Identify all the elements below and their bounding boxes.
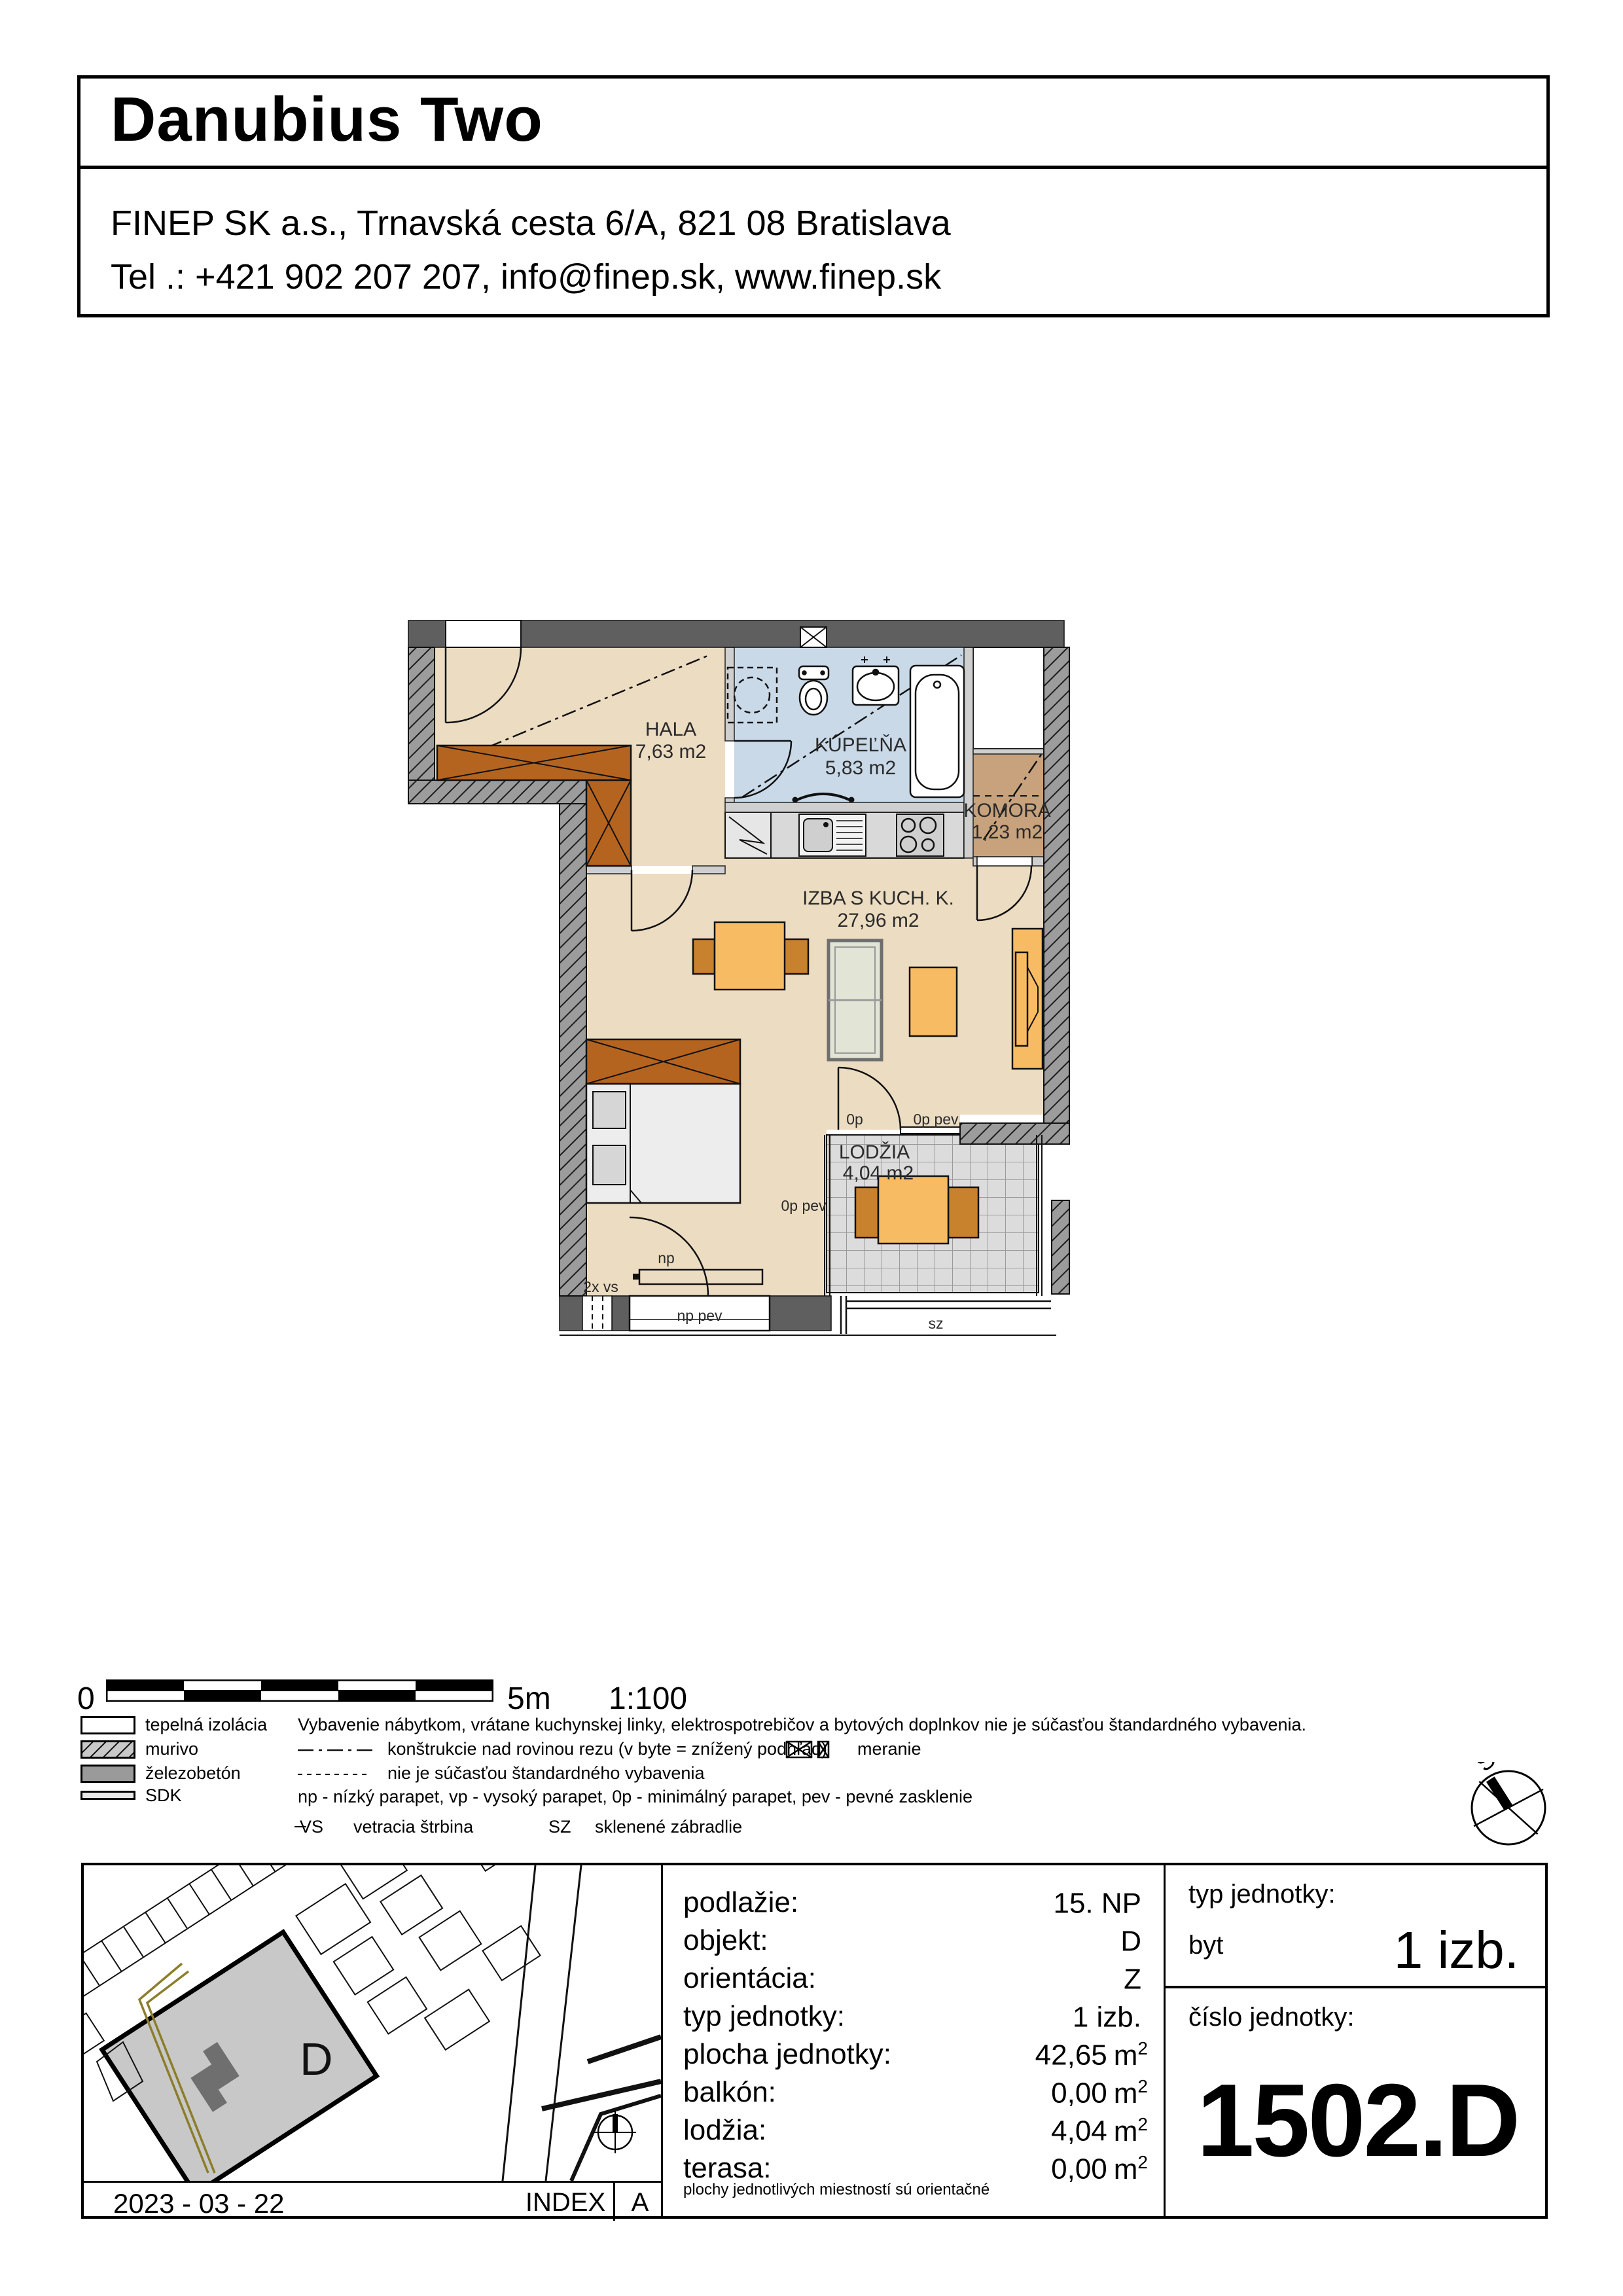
room-area-kupelna: 5,83 m2 xyxy=(825,757,896,779)
row-value: 0,00m2 xyxy=(1051,2152,1148,2186)
legend-item-label: železobetón xyxy=(145,1763,241,1784)
glass-railing xyxy=(841,1296,1051,1334)
table-row: balkón: 0,00m2 xyxy=(683,2076,1148,2109)
unit-type-value: 1 izb. xyxy=(1394,1920,1519,1981)
row-label: orientácia: xyxy=(683,1962,816,1995)
loggia-chair xyxy=(948,1187,978,1238)
floor-plan: HALA 7,63 m2 KÚPEĽŇA 5,83 m2 KOMORA 1,23… xyxy=(404,614,1079,1344)
company-address: FINEP SK a.s., Trnavská cesta 6/A, 821 0… xyxy=(111,203,951,243)
swatch-murivo xyxy=(80,1740,135,1759)
note-equipment: Vybavenie nábytkom, vrátane kuchynskej l… xyxy=(298,1715,1306,1735)
row-value: 1 izb. xyxy=(1073,2000,1148,2034)
pillow xyxy=(593,1092,626,1128)
table-row: typ jednotky: 1 izb. xyxy=(683,2000,1148,2033)
vent-gap xyxy=(582,1296,612,1331)
swatch-sdk xyxy=(80,1791,135,1800)
divider xyxy=(1166,1986,1545,1988)
chair xyxy=(693,939,715,974)
loggia-glazing xyxy=(901,1127,960,1134)
row-value: 4,04m2 xyxy=(1051,2114,1148,2148)
row-label: plocha jednotky: xyxy=(683,2038,891,2071)
dining-table xyxy=(715,922,785,990)
mark-np: np xyxy=(658,1249,675,1266)
dashdot-sample xyxy=(298,1746,376,1754)
coffee-table xyxy=(910,967,957,1036)
table-row: objekt: D xyxy=(683,1924,1148,1957)
index-label: INDEX xyxy=(520,2188,611,2217)
loggia-chair xyxy=(855,1187,878,1238)
site-map: D xyxy=(84,1865,661,2181)
vs-tick xyxy=(294,1826,306,1827)
row-value: Z xyxy=(1124,1962,1148,1996)
room-label-lodzia: LODŽIA xyxy=(839,1141,910,1163)
row-value: 15. NP xyxy=(1053,1886,1148,1920)
row-label: podlažie: xyxy=(683,1886,798,1919)
row-label: balkón: xyxy=(683,2076,776,2109)
scalebar xyxy=(106,1679,493,1702)
title-block: D 2023 - 03 - 22 INDEX A podlažie: 15. N… xyxy=(81,1863,1548,2219)
row-label: terasa: xyxy=(683,2152,772,2185)
room-label-hala: HALA xyxy=(645,719,696,740)
legend-vs-text: vetracia štrbina xyxy=(353,1817,473,1837)
floorplan-sheet: Danubius Two FINEP SK a.s., Trnavská ces… xyxy=(0,0,1623,2296)
note-section: konštrukcie nad rovinou rezu (v byte = z… xyxy=(387,1739,827,1759)
mark-vs: 2x vs xyxy=(583,1278,618,1295)
scalebar-zero: 0 xyxy=(77,1681,95,1717)
revision: A xyxy=(615,2188,665,2217)
meranie-icon xyxy=(785,1740,831,1759)
room-label-kupelna: KÚPEĽŇA xyxy=(815,734,906,756)
compass-north-pointer xyxy=(1483,1779,1516,1808)
row-label: objekt: xyxy=(683,1924,768,1957)
unit-number: 1502.D xyxy=(1170,2062,1545,2180)
row-value: 42,65m2 xyxy=(1035,2038,1148,2072)
table-row: podlažie: 15. NP xyxy=(683,1886,1148,1919)
table-row: orientácia: Z xyxy=(683,1962,1148,1995)
map-building-label: D xyxy=(300,2034,333,2085)
note-meranie: meranie xyxy=(857,1739,921,1759)
scalebar-ratio: 1:100 xyxy=(609,1681,687,1717)
page-title: Danubius Two xyxy=(111,84,543,156)
hala-wardrobe xyxy=(437,745,631,866)
mark-sz: sz xyxy=(929,1315,944,1332)
entry-door-opening xyxy=(446,620,521,647)
room-area-komora: 1,23 m2 xyxy=(972,821,1043,843)
kitchen-faucet xyxy=(823,822,829,827)
unit-type-label: typ jednotky: xyxy=(1188,1880,1336,1909)
divider xyxy=(661,1865,663,2216)
swatch-zelezobeton xyxy=(80,1765,135,1783)
row-value: 0,00m2 xyxy=(1051,2076,1148,2110)
scalebar-cells xyxy=(107,1680,493,1701)
mark-op-pev-top: 0p pev xyxy=(913,1111,959,1128)
pillow xyxy=(593,1145,626,1185)
loggia-table xyxy=(878,1176,948,1244)
legend-item-label: murivo xyxy=(145,1739,198,1759)
note-parapet: np - nízký parapet, vp - vysoký parapet,… xyxy=(298,1787,972,1807)
company-contact: Tel .: +421 902 207 207, info@finep.sk, … xyxy=(111,257,941,297)
bathtub xyxy=(910,666,964,797)
row-label: typ jednotky: xyxy=(683,2000,845,2033)
note-dashed: nie je súčasťou štandardného vybavenia xyxy=(387,1763,704,1784)
komora-threshold xyxy=(977,857,1032,866)
room-label-komora: KOMORA xyxy=(963,800,1050,821)
radiator xyxy=(639,1270,762,1284)
room-area-hala: 7,63 m2 xyxy=(635,741,706,762)
legend-sz-text: sklenené zábradlie xyxy=(595,1817,742,1837)
toilet xyxy=(799,666,829,715)
legend-sz-abbr: SZ xyxy=(548,1817,571,1837)
room-area-izba: 27,96 m2 xyxy=(837,910,919,931)
compass: S xyxy=(1463,1762,1554,1854)
title-section: Danubius Two xyxy=(80,79,1546,169)
mark-op: 0p xyxy=(846,1111,863,1128)
mark-op-pev-bottom: 0p pev xyxy=(781,1197,827,1214)
date: 2023 - 03 - 22 xyxy=(113,2188,285,2219)
swatch-tepelna-izolacia xyxy=(80,1716,135,1734)
table-row: lodžia: 4,04m2 xyxy=(683,2114,1148,2147)
unit-type-kind: byt xyxy=(1188,1931,1223,1960)
table-footnote: plochy jednotlivých miestností sú orient… xyxy=(683,2181,990,2199)
revision-box: A xyxy=(613,2183,665,2221)
legend-item-label: SDK xyxy=(145,1785,182,1806)
table-row: terasa: 0,00m2 xyxy=(683,2152,1148,2185)
room-label-izba: IZBA S KUCH. K. xyxy=(802,888,954,909)
compass-north-label: S xyxy=(1471,1762,1501,1777)
row-label: lodžia: xyxy=(683,2114,766,2147)
legend-item-label: tepelná izolácia xyxy=(145,1715,267,1735)
mark-np-pev: np pev xyxy=(677,1307,722,1324)
dashed-sample xyxy=(298,1770,370,1778)
duct-box xyxy=(800,627,827,647)
shaft xyxy=(973,647,1044,749)
scalebar-end: 5m xyxy=(507,1681,551,1717)
unit-number-label: číslo jednotky: xyxy=(1188,2003,1354,2032)
radiator-valve xyxy=(633,1274,639,1280)
row-value: D xyxy=(1120,1924,1148,1958)
room-area-lodzia: 4,04 m2 xyxy=(843,1162,914,1184)
header-box: Danubius Two FINEP SK a.s., Trnavská ces… xyxy=(77,75,1550,317)
divider xyxy=(1164,1865,1166,2216)
table-row: plocha jednotky: 42,65m2 xyxy=(683,2038,1148,2071)
date-strip: 2023 - 03 - 22 INDEX A xyxy=(84,2181,663,2221)
